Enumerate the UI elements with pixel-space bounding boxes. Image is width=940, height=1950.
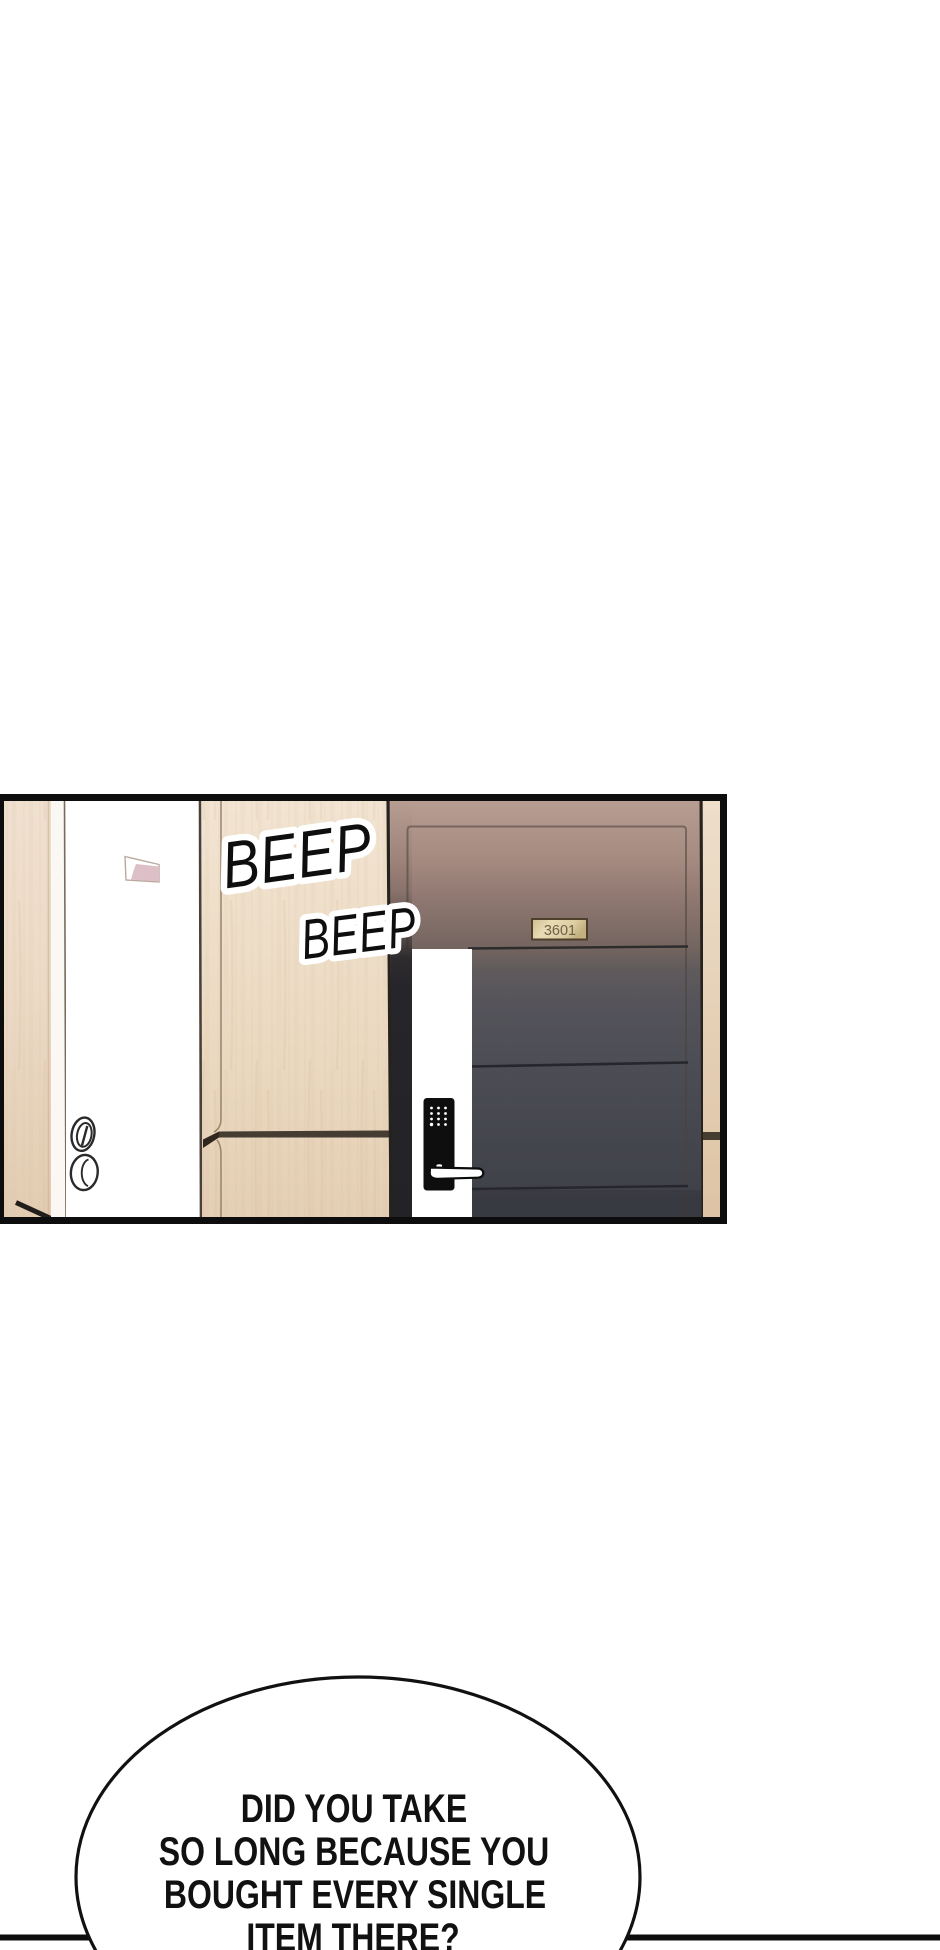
svg-text:3601: 3601	[544, 923, 576, 939]
svg-text:BOUGHT EVERY SINGLE: BOUGHT EVERY SINGLE	[164, 1872, 546, 1917]
svg-text:ITEM THERE?: ITEM THERE?	[246, 1915, 459, 1950]
svg-text:SO LONG BECAUSE YOU: SO LONG BECAUSE YOU	[159, 1829, 550, 1874]
svg-text:DID YOU TAKE: DID YOU TAKE	[241, 1786, 467, 1831]
